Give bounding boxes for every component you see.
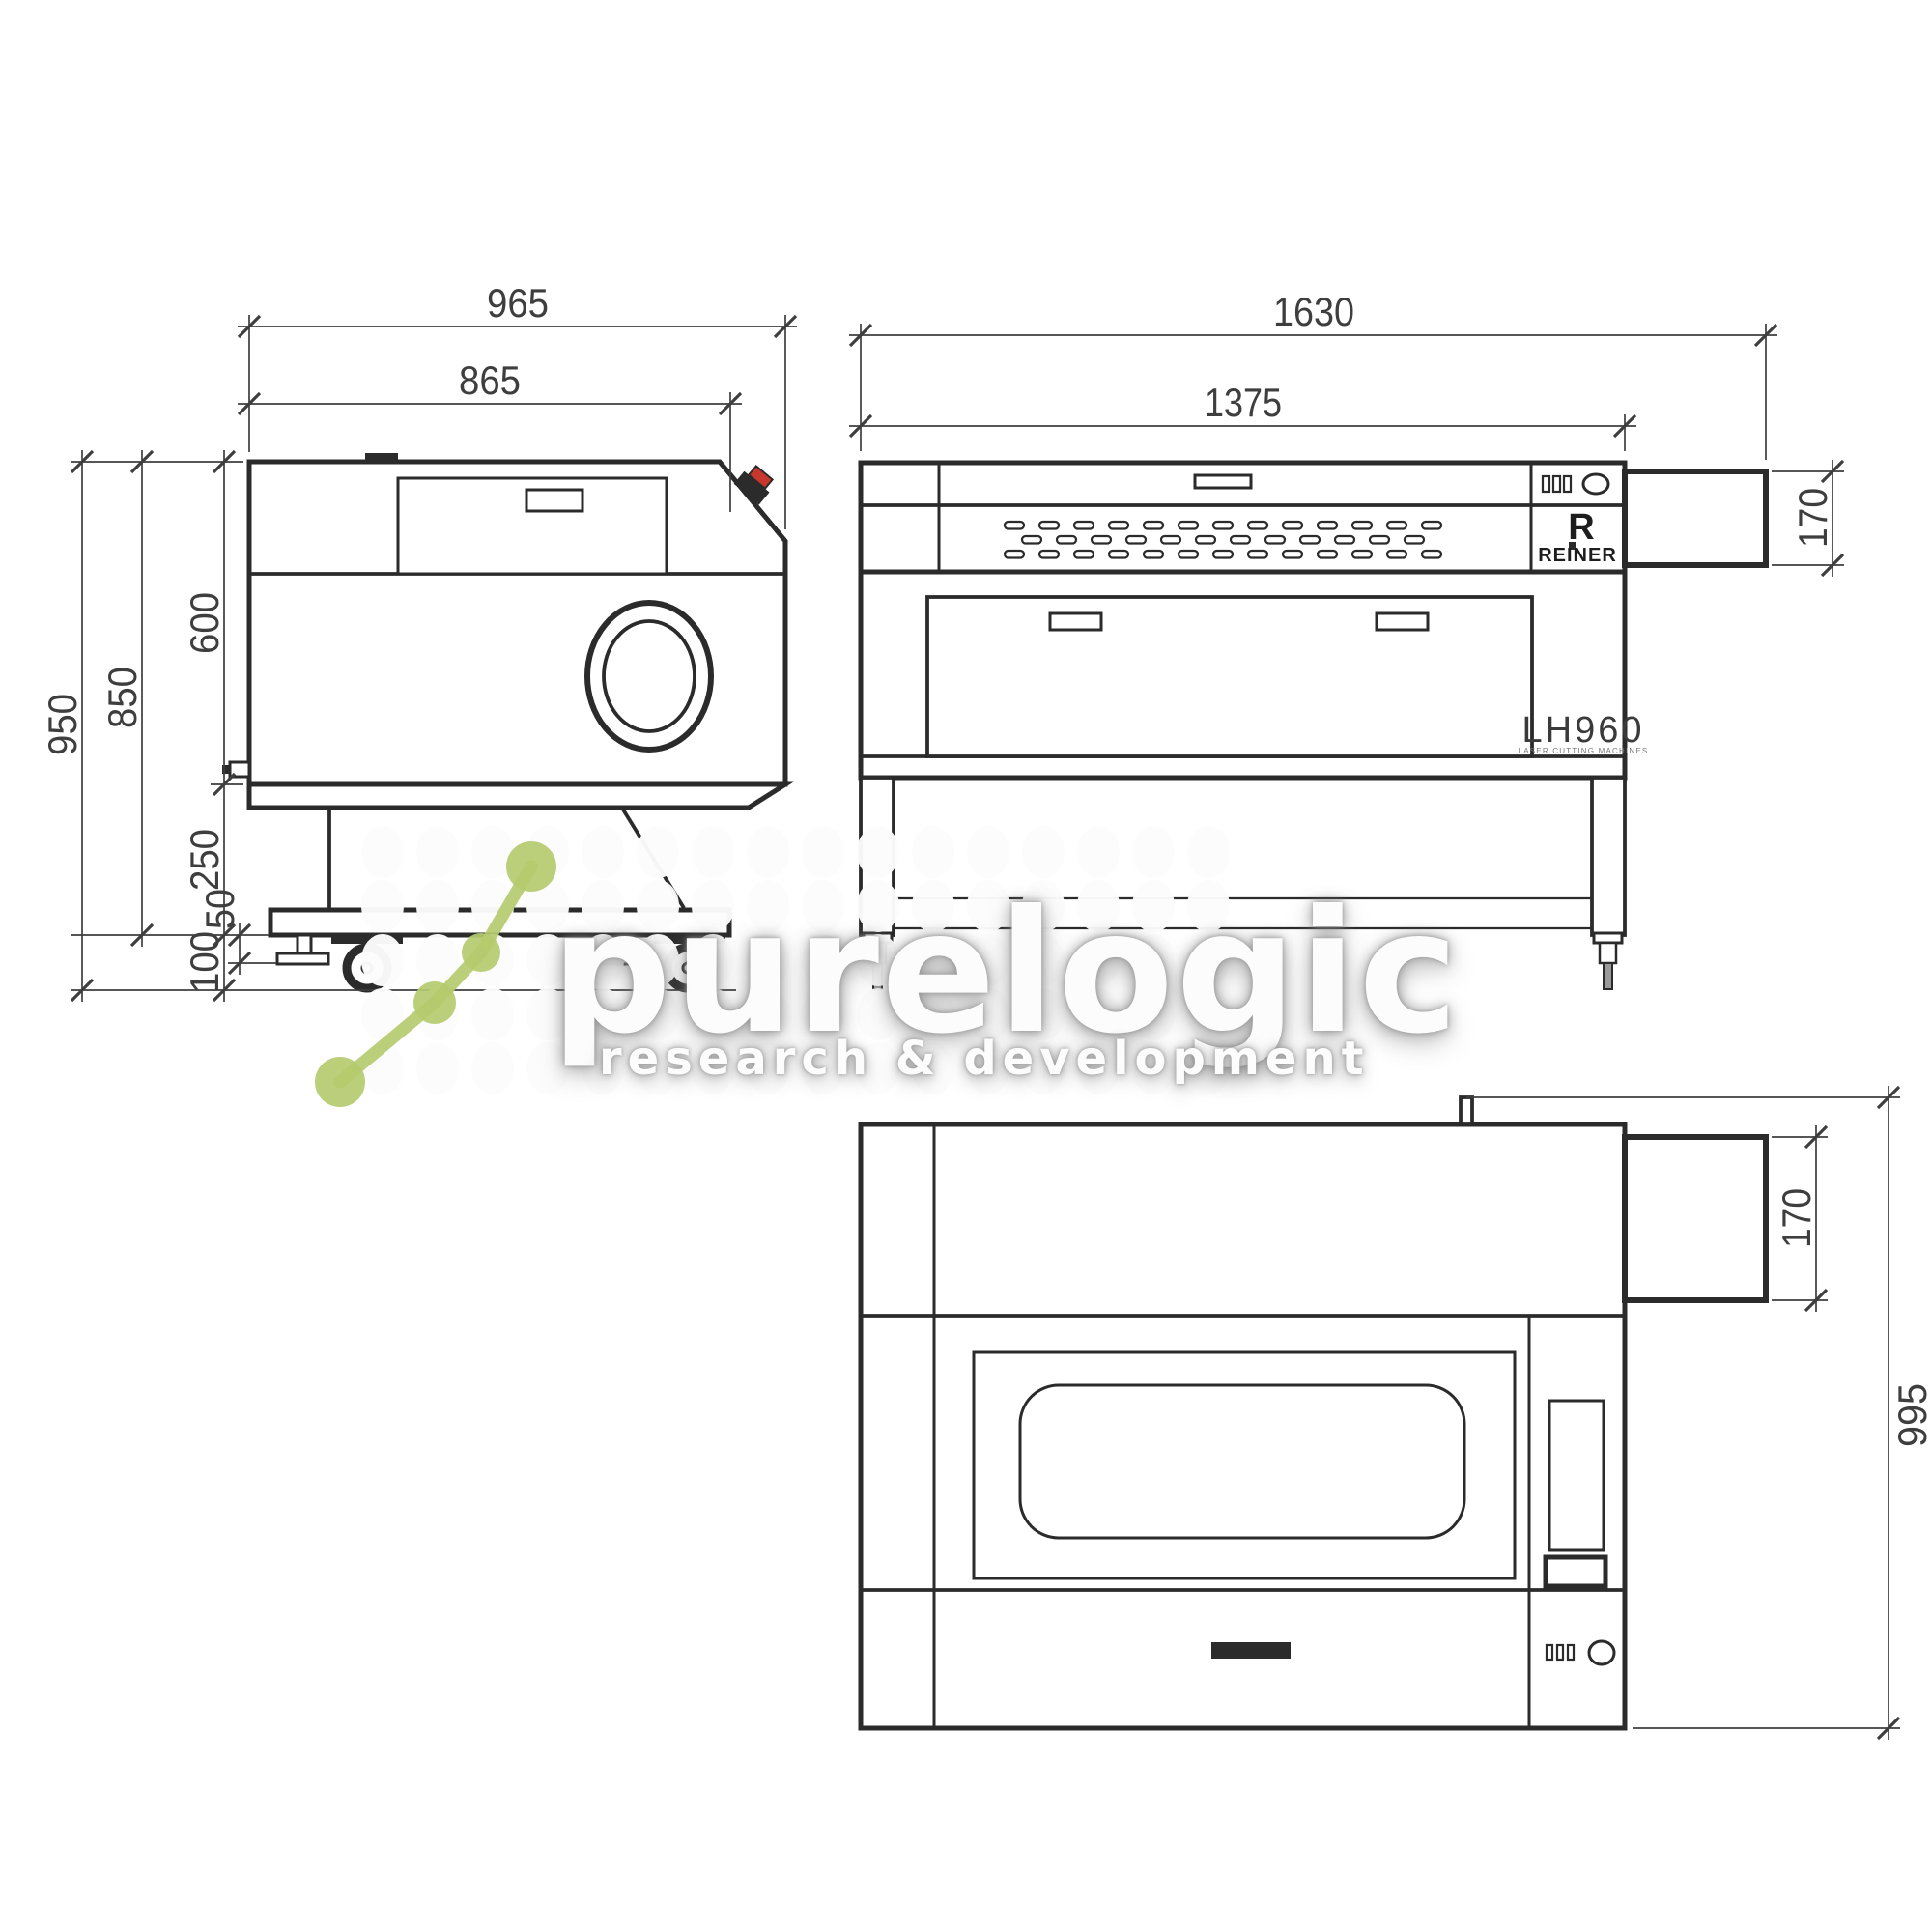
indicator-light-icon: [1564, 476, 1571, 492]
viewing-window-inner: [1020, 1385, 1464, 1538]
dim-top-depth-total: 995: [1889, 1383, 1932, 1447]
dim-front-duct-height: 170: [1790, 488, 1835, 548]
power-button-icon: [1583, 474, 1608, 494]
top-front-handle: [1211, 1642, 1291, 1659]
dim-side-width-top: 865: [459, 357, 521, 403]
dim-front-width-total: 1630: [1273, 289, 1354, 334]
indicator-light-icon: [1553, 476, 1560, 492]
dim-side-width-total: 965: [487, 280, 549, 326]
dim-front-width-body: 1375: [1205, 380, 1282, 425]
dim-side-height-total: 950: [40, 694, 85, 755]
indicator-light-icon: [1568, 1645, 1574, 1660]
model-subtitle: LASER CUTTING MACHINES: [1519, 747, 1649, 755]
foot-plate-left: [277, 953, 328, 964]
foot-stem-left: [298, 935, 311, 953]
dim-side-foot-travel: 50: [197, 889, 242, 929]
front-leg-right: [1592, 778, 1625, 935]
watermark-subtitle: research & development: [599, 1036, 1370, 1082]
dim-side-height-to-stand-base: 850: [99, 667, 145, 728]
front-foot-right: [1594, 933, 1622, 989]
power-button-icon: [1589, 1641, 1614, 1664]
front-door-handle-right: [1377, 613, 1428, 630]
drawing-canvas: R REINER LH960 LASER CUTTING MACHINES: [0, 0, 1932, 1932]
indicator-light-icon: [1547, 1645, 1552, 1660]
side-top-hinge: [365, 453, 398, 462]
top-handle-tab: [1461, 1097, 1472, 1124]
top-side-panel: [1549, 1401, 1604, 1550]
front-exhaust-duct: [1625, 471, 1766, 565]
top-exhaust-duct: [1625, 1137, 1766, 1300]
dim-side-stand-height: 250: [182, 829, 227, 891]
dim-top-duct-depth: 170: [1774, 1188, 1819, 1248]
reiner-logo-name: REINER: [1538, 545, 1617, 566]
top-view: [861, 1097, 1766, 1728]
indicator-light-icon: [1543, 476, 1549, 492]
model-label: LH960 LASER CUTTING MACHINES: [1519, 710, 1649, 755]
dim-side-height-body: 600: [182, 592, 227, 654]
model-name: LH960: [1522, 710, 1645, 751]
top-side-box: [1546, 1557, 1605, 1586]
side-base-lip: [249, 784, 785, 808]
front-door: [927, 597, 1532, 756]
dim-side-caster-height: 100: [182, 931, 227, 993]
front-lid-handle: [1195, 475, 1251, 488]
side-lid-handle: [526, 490, 582, 511]
indicator-light-icon: [1557, 1645, 1563, 1660]
front-door-handle-left: [1050, 613, 1101, 630]
reiner-logo-letter: R: [1568, 507, 1594, 548]
